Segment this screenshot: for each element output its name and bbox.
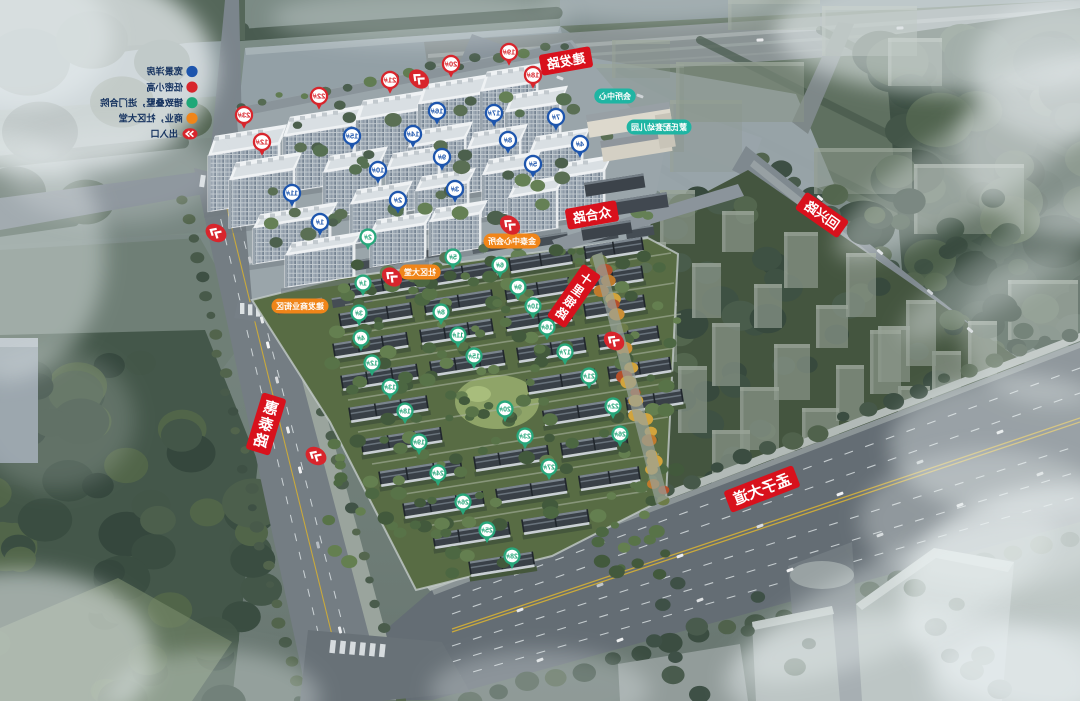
- svg-text:宽景洋房: 宽景洋房: [146, 66, 184, 77]
- svg-text:5#: 5#: [449, 255, 457, 262]
- svg-text:9#: 9#: [437, 153, 446, 162]
- svg-text:20#: 20#: [499, 407, 511, 414]
- svg-text:11#: 11#: [285, 189, 298, 198]
- svg-text:28#: 28#: [506, 554, 518, 561]
- svg-text:6#: 6#: [496, 263, 504, 270]
- svg-text:错致叠墅，进门合院: 错致叠墅，进门合院: [100, 97, 183, 108]
- svg-text:22#: 22#: [312, 92, 325, 101]
- svg-text:26#: 26#: [457, 500, 469, 507]
- svg-text:19#: 19#: [413, 440, 425, 447]
- svg-text:23#: 23#: [237, 111, 250, 120]
- svg-text:17#: 17#: [559, 350, 571, 357]
- svg-text:5#: 5#: [528, 160, 537, 169]
- svg-text:会所中心: 会所中心: [599, 91, 631, 101]
- svg-text:16#: 16#: [541, 325, 553, 332]
- svg-text:22#: 22#: [607, 404, 619, 411]
- svg-text:27#: 27#: [543, 465, 555, 472]
- svg-text:7#: 7#: [551, 113, 560, 122]
- svg-text:4#: 4#: [357, 336, 365, 343]
- svg-text:商业，社区大堂: 商业，社区大堂: [119, 113, 183, 124]
- svg-text:12#: 12#: [366, 361, 378, 368]
- svg-text:16#: 16#: [430, 107, 443, 116]
- svg-text:8#: 8#: [503, 136, 512, 145]
- svg-text:12#: 12#: [255, 138, 268, 147]
- svg-text:15#: 15#: [468, 354, 480, 361]
- svg-text:3#: 3#: [355, 311, 363, 318]
- svg-text:金泰中心会所: 金泰中心会所: [488, 236, 537, 246]
- svg-text:19#: 19#: [502, 48, 515, 57]
- svg-text:2#: 2#: [393, 196, 402, 205]
- svg-text:9#: 9#: [514, 285, 522, 292]
- svg-text:蒙氏配套幼儿园: 蒙氏配套幼儿园: [631, 122, 687, 132]
- svg-text:18#: 18#: [399, 409, 411, 416]
- svg-text:14#: 14#: [406, 130, 419, 139]
- svg-text:2#: 2#: [364, 235, 372, 242]
- svg-text:23#: 23#: [519, 434, 531, 441]
- svg-text:26#: 26#: [614, 432, 626, 439]
- svg-text:建发商业街区: 建发商业街区: [276, 301, 325, 311]
- svg-text:8#: 8#: [437, 310, 445, 317]
- svg-text:20#: 20#: [444, 60, 457, 69]
- svg-text:出入口: 出入口: [150, 128, 178, 139]
- svg-text:1#: 1#: [315, 218, 324, 227]
- svg-text:21#: 21#: [383, 76, 396, 85]
- svg-text:社区大堂: 社区大堂: [404, 267, 437, 277]
- svg-text:10#: 10#: [371, 166, 384, 175]
- svg-text:25#: 25#: [481, 528, 493, 535]
- svg-text:4#: 4#: [575, 140, 584, 149]
- svg-text:3#: 3#: [450, 185, 459, 194]
- svg-text:低密小高: 低密小高: [146, 81, 184, 92]
- svg-text:15#: 15#: [345, 132, 358, 141]
- svg-text:10#: 10#: [527, 304, 539, 311]
- svg-text:17#: 17#: [487, 109, 500, 118]
- svg-text:1#: 1#: [359, 281, 367, 288]
- svg-text:24#: 24#: [432, 471, 444, 478]
- svg-text:11#: 11#: [452, 333, 463, 340]
- svg-text:13#: 13#: [384, 385, 396, 392]
- svg-text:21#: 21#: [583, 374, 595, 381]
- svg-text:18#: 18#: [526, 71, 539, 80]
